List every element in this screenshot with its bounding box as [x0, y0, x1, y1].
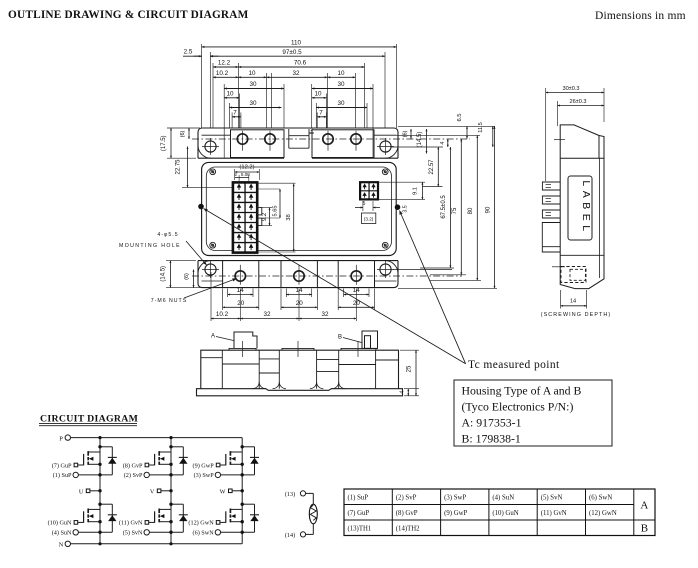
svg-text:(11) GvN: (11) GvN	[119, 520, 143, 527]
svg-text:(14.5): (14.5)	[161, 266, 167, 282]
svg-text:(14.5): (14.5)	[417, 132, 423, 148]
svg-text:N: N	[59, 542, 64, 549]
svg-text:Tc measured point: Tc measured point	[468, 359, 560, 371]
svg-text:(1) SuP: (1) SuP	[53, 472, 72, 479]
svg-text:2.5: 2.5	[184, 49, 193, 56]
svg-text:(3.2): (3.2)	[364, 216, 374, 221]
svg-text:(Tyco Electronics P/N:): (Tyco Electronics P/N:)	[462, 400, 574, 414]
svg-text:9.1: 9.1	[413, 187, 419, 195]
svg-text:(12.2): (12.2)	[239, 165, 254, 171]
svg-text:20: 20	[237, 300, 245, 307]
svg-text:(5) SvN: (5) SvN	[541, 495, 563, 502]
svg-text:10: 10	[314, 90, 322, 97]
svg-text:(12) GwN: (12) GwN	[589, 510, 617, 517]
svg-text:25: 25	[407, 365, 413, 372]
svg-text:(3) SwP: (3) SwP	[444, 495, 466, 502]
svg-text:U: U	[79, 488, 84, 495]
svg-text:(1) SuP: (1) SuP	[348, 495, 369, 502]
svg-text:11.5: 11.5	[478, 122, 484, 132]
svg-text:(SCREWING DEPTH): (SCREWING DEPTH)	[541, 312, 612, 318]
svg-text:12.2: 12.2	[218, 60, 231, 67]
svg-text:2: 2	[234, 172, 237, 177]
svg-text:10.2: 10.2	[216, 311, 229, 318]
svg-text:(3) SwP: (3) SwP	[194, 472, 215, 479]
svg-text:90: 90	[485, 206, 491, 213]
svg-text:(10) GuN: (10) GuN	[492, 510, 518, 517]
svg-text:4: 4	[400, 390, 406, 393]
svg-text:4-φ5.5: 4-φ5.5	[157, 232, 178, 238]
svg-text:20: 20	[296, 300, 304, 307]
svg-text:4: 4	[440, 141, 446, 144]
svg-text:(17.5): (17.5)	[161, 135, 167, 151]
svg-text:30: 30	[337, 81, 345, 88]
svg-text:75: 75	[452, 207, 458, 214]
svg-text:Dimensions in mm: Dimensions in mm	[595, 10, 686, 22]
svg-text:P: P	[59, 435, 63, 442]
svg-text:(9) GwP: (9) GwP	[193, 462, 215, 469]
svg-text:(7) GuP: (7) GuP	[52, 462, 72, 469]
svg-text:7: 7	[319, 109, 323, 116]
svg-text:80: 80	[468, 207, 474, 214]
svg-text:38: 38	[286, 214, 292, 220]
svg-text:10: 10	[248, 70, 256, 77]
svg-text:30: 30	[249, 100, 257, 107]
svg-text:30: 30	[337, 100, 345, 107]
svg-text:(14)TH2: (14)TH2	[396, 526, 420, 533]
svg-text:10.2: 10.2	[216, 70, 229, 77]
svg-text:(2) SvP: (2) SvP	[124, 472, 143, 479]
svg-text:6.5: 6.5	[457, 113, 463, 121]
svg-text:22.75: 22.75	[176, 159, 182, 175]
svg-text:A: A	[640, 500, 648, 512]
svg-text:(4) SuN: (4) SuN	[492, 495, 514, 502]
svg-text:MOUNTING HOLE: MOUNTING HOLE	[119, 243, 181, 249]
svg-text:OUTLINE DRAWING & CIRCUIT DIAG: OUTLINE DRAWING & CIRCUIT DIAGRAM	[8, 9, 249, 21]
svg-text:30: 30	[249, 81, 257, 88]
svg-text:Housing Type of A and B: Housing Type of A and B	[462, 384, 582, 398]
svg-text:(13)TH1: (13)TH1	[348, 526, 372, 533]
svg-text:W: W	[220, 488, 226, 495]
svg-text:10: 10	[337, 70, 345, 77]
svg-text:32: 32	[263, 311, 271, 318]
svg-text:(2) SvP: (2) SvP	[396, 495, 417, 502]
svg-text:9.2: 9.2	[262, 212, 268, 221]
svg-text:10: 10	[226, 90, 234, 97]
svg-text:32: 32	[292, 70, 300, 77]
svg-text:7-M6 NUTS: 7-M6 NUTS	[151, 298, 187, 304]
svg-text:(8) GvP: (8) GvP	[396, 510, 418, 517]
svg-text:(6): (6)	[402, 130, 408, 137]
svg-text:A: A	[211, 334, 215, 340]
svg-text:(14): (14)	[285, 532, 295, 539]
svg-text:(13): (13)	[285, 491, 295, 498]
svg-text:A: 917353-1: A: 917353-1	[462, 416, 522, 430]
svg-text:(7) GuP: (7) GuP	[348, 510, 370, 517]
svg-text:30±0.3: 30±0.3	[562, 86, 579, 92]
svg-text:110: 110	[291, 40, 302, 47]
svg-text:(6): (6)	[184, 273, 190, 280]
svg-text:32: 32	[321, 311, 329, 318]
svg-text:(10) GuN: (10) GuN	[48, 520, 72, 527]
svg-text:(11) GvN: (11) GvN	[541, 510, 567, 517]
svg-text:(6) SwN: (6) SwN	[193, 530, 215, 537]
svg-text:(6): (6)	[180, 130, 186, 137]
svg-text:22.57: 22.57	[429, 159, 435, 175]
svg-text:(5) SvN: (5) SvN	[123, 530, 143, 537]
svg-text:70.6: 70.6	[294, 60, 307, 67]
svg-text:(4) SuN: (4) SuN	[52, 530, 72, 537]
svg-text:97±0.5: 97±0.5	[282, 49, 302, 56]
svg-text:(6) SwN: (6) SwN	[589, 495, 612, 502]
svg-text:LABEL: LABEL	[580, 180, 592, 235]
svg-text:7: 7	[233, 109, 237, 116]
svg-text:5.65: 5.65	[273, 206, 279, 217]
svg-text:V: V	[150, 488, 155, 495]
svg-text:CIRCUIT DIAGRAM: CIRCUIT DIAGRAM	[40, 414, 138, 425]
svg-text:26±0.3: 26±0.3	[569, 99, 586, 105]
svg-text:(9) GwP: (9) GwP	[444, 510, 467, 517]
svg-text:67.5±0.5: 67.5±0.5	[441, 195, 447, 219]
svg-text:3.5: 3.5	[403, 205, 409, 212]
svg-text:14: 14	[570, 299, 576, 305]
svg-text:(12) GwN: (12) GwN	[188, 520, 214, 527]
svg-text:B: 179838-1: B: 179838-1	[462, 432, 521, 446]
svg-text:B: B	[338, 335, 342, 341]
svg-text:B: B	[641, 523, 648, 535]
svg-text:(8) GvP: (8) GvP	[123, 462, 143, 469]
